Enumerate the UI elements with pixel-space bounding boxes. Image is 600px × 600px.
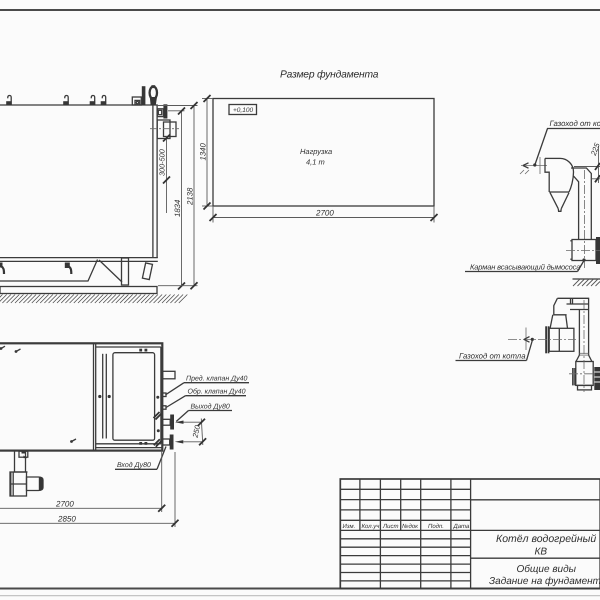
svg-text:Карман всасывающий дымососа: Карман всасывающий дымососа bbox=[470, 263, 580, 272]
svg-text:1340: 1340 bbox=[199, 142, 208, 160]
svg-text:Газоход от котла: Газоход от котла bbox=[459, 352, 526, 361]
svg-text:Газоход от котла: Газоход от котла bbox=[550, 119, 600, 128]
svg-text:Нагрузка: Нагрузка bbox=[300, 147, 332, 156]
svg-text:4,1 т: 4,1 т bbox=[306, 158, 325, 167]
svg-text:2700: 2700 bbox=[55, 500, 74, 509]
svg-text:Вход Ду80: Вход Ду80 bbox=[117, 461, 151, 469]
svg-text:Лист: Лист bbox=[382, 523, 398, 530]
svg-text:Дата: Дата bbox=[453, 523, 470, 530]
svg-text:Изм.: Изм. bbox=[343, 523, 356, 530]
svg-text:Задание на фундамент: Задание на фундамент bbox=[489, 576, 600, 587]
svg-text:+0,100: +0,100 bbox=[233, 107, 253, 114]
svg-text:№док: №док bbox=[402, 523, 419, 530]
svg-text:КВ: КВ bbox=[535, 547, 548, 558]
svg-text:Размер фундамента: Размер фундамента bbox=[280, 70, 379, 81]
svg-text:2850: 2850 bbox=[57, 515, 76, 524]
svg-text:Общие виды: Общие виды bbox=[517, 564, 577, 575]
svg-text:2700: 2700 bbox=[315, 209, 334, 218]
svg-text:2138: 2138 bbox=[186, 187, 195, 206]
svg-text:Кол.уч: Кол.уч bbox=[362, 523, 380, 530]
svg-text:Обр. клапан Ду40: Обр. клапан Ду40 bbox=[188, 388, 246, 396]
svg-text:Пред. клапан Ду40: Пред. клапан Ду40 bbox=[186, 375, 248, 383]
svg-text:300-500: 300-500 bbox=[158, 149, 167, 176]
svg-text:Подп.: Подп. bbox=[428, 523, 444, 530]
svg-text:Выход Ду80: Выход Ду80 bbox=[191, 402, 230, 410]
svg-text:1834: 1834 bbox=[173, 199, 182, 217]
svg-text:Котёл водогрейный: Котёл водогрейный bbox=[496, 533, 596, 545]
